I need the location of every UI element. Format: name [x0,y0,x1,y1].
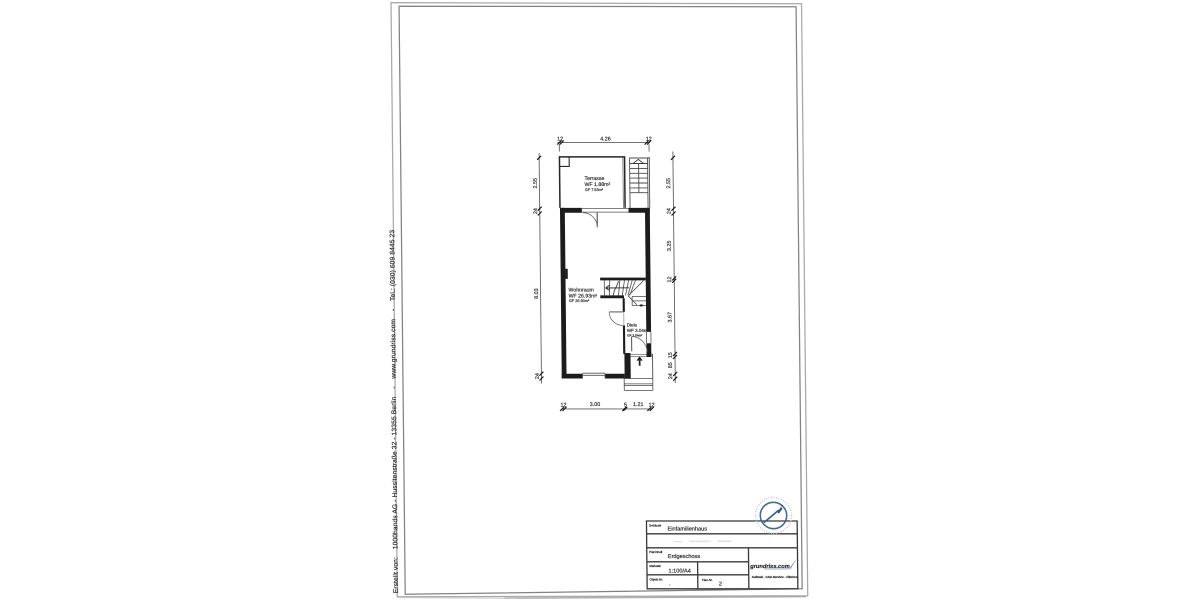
svg-text:24: 24 [533,208,539,214]
svg-text:Objekt-Nr.: Objekt-Nr. [649,578,663,582]
svg-text:2.55: 2.55 [666,178,672,189]
svg-text:24: 24 [535,373,541,379]
svg-text:24: 24 [668,373,674,379]
svg-text:Plan-Nr.: Plan-Nr. [702,578,713,582]
svg-text:12: 12 [646,137,652,143]
svg-text:12: 12 [649,402,655,408]
svg-text:15: 15 [668,352,674,358]
svg-text:3.00: 3.00 [590,402,601,408]
svg-text:GF 26.93m²: GF 26.93m² [569,299,590,303]
svg-text:24: 24 [666,208,672,214]
svg-text:Einfamilienhaus: Einfamilienhaus [668,526,708,533]
svg-text:GF 7.53m²: GF 7.53m² [585,188,604,192]
svg-text:Planinhalt: Planinhalt [649,550,662,554]
svg-text:Maßstab: Maßstab [649,564,661,568]
svg-text:3.67: 3.67 [667,312,673,323]
svg-text:Gebäude: Gebäude [649,523,662,527]
svg-text:1.21: 1.21 [633,402,644,408]
svg-text:WF 3.04m²: WF 3.04m² [627,328,650,333]
svg-text:3.25: 3.25 [667,241,673,252]
svg-text:12: 12 [557,137,563,143]
svg-text:1:100/A4: 1:100/A4 [668,567,690,574]
svg-text:4.26: 4.26 [600,136,611,142]
svg-text:2.55: 2.55 [533,178,539,189]
svg-text:5: 5 [624,402,627,408]
svg-text:85: 85 [668,362,674,368]
svg-text:2: 2 [719,582,722,588]
svg-text:Aufmaß - CAD-Service - Flächen: Aufmaß - CAD-Service - Flächen [752,575,798,579]
svg-text:12: 12 [667,277,673,283]
svg-text:8.03: 8.03 [534,288,540,299]
svg-text:Erdgeschoss: Erdgeschoss [668,553,701,560]
svg-text:12: 12 [560,402,566,408]
